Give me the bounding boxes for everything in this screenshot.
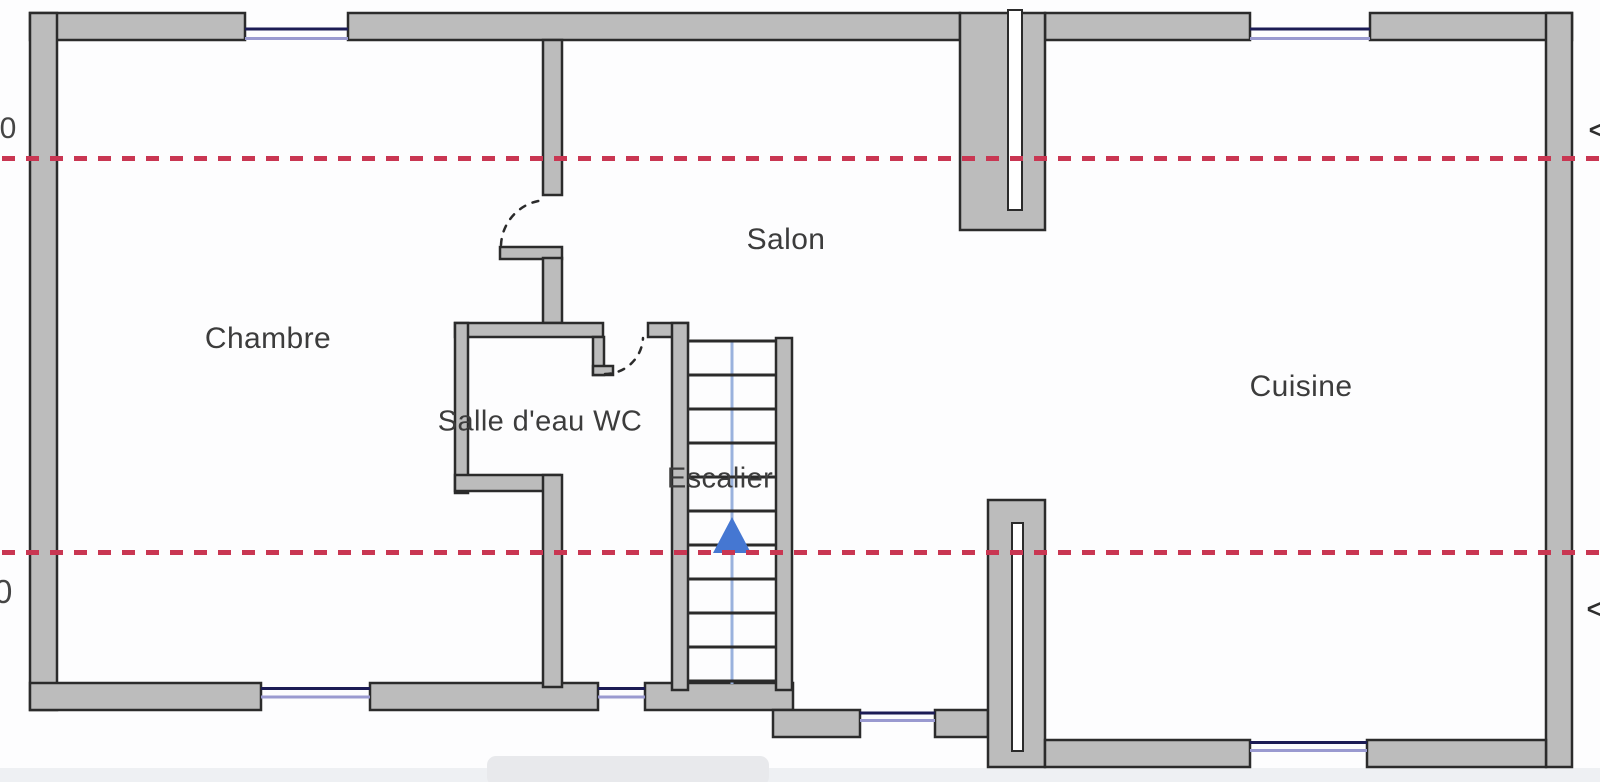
elevation-marker-left-top: 30 (0, 112, 16, 146)
staircase-group (688, 341, 776, 684)
window-top-right (1250, 29, 1370, 39)
room-label-cuisine: Cuisine (1250, 370, 1353, 404)
room-label-salle-eau-wc: Salle d'eau WC (438, 406, 643, 439)
floor-plan-drawing (0, 0, 1600, 782)
window-top-left (245, 29, 348, 39)
window-bottom-salon (860, 713, 935, 721)
stairs-up-arrow-icon (713, 517, 751, 553)
window-bottom-corridor (598, 689, 645, 698)
room-label-chambre: Chambre (205, 322, 331, 356)
door-arc-chambre (501, 200, 546, 245)
elevation-marker-left-bottom: 0 (0, 573, 12, 611)
section-arrow-right-top-icon: < (1588, 109, 1600, 151)
window-bottom-chambre (261, 689, 370, 698)
background-bands (0, 756, 1600, 782)
window-bottom-cuisine (1250, 743, 1367, 751)
floor-plan: Chambre Salon Salle d'eau WC Escalier Cu… (0, 0, 1600, 782)
room-label-escalier: Escalier (667, 463, 773, 496)
windows-group (245, 29, 1370, 751)
door-arcs-group (501, 200, 643, 374)
section-arrow-right-bottom-icon: < (1586, 588, 1600, 630)
room-label-salon: Salon (747, 223, 826, 257)
